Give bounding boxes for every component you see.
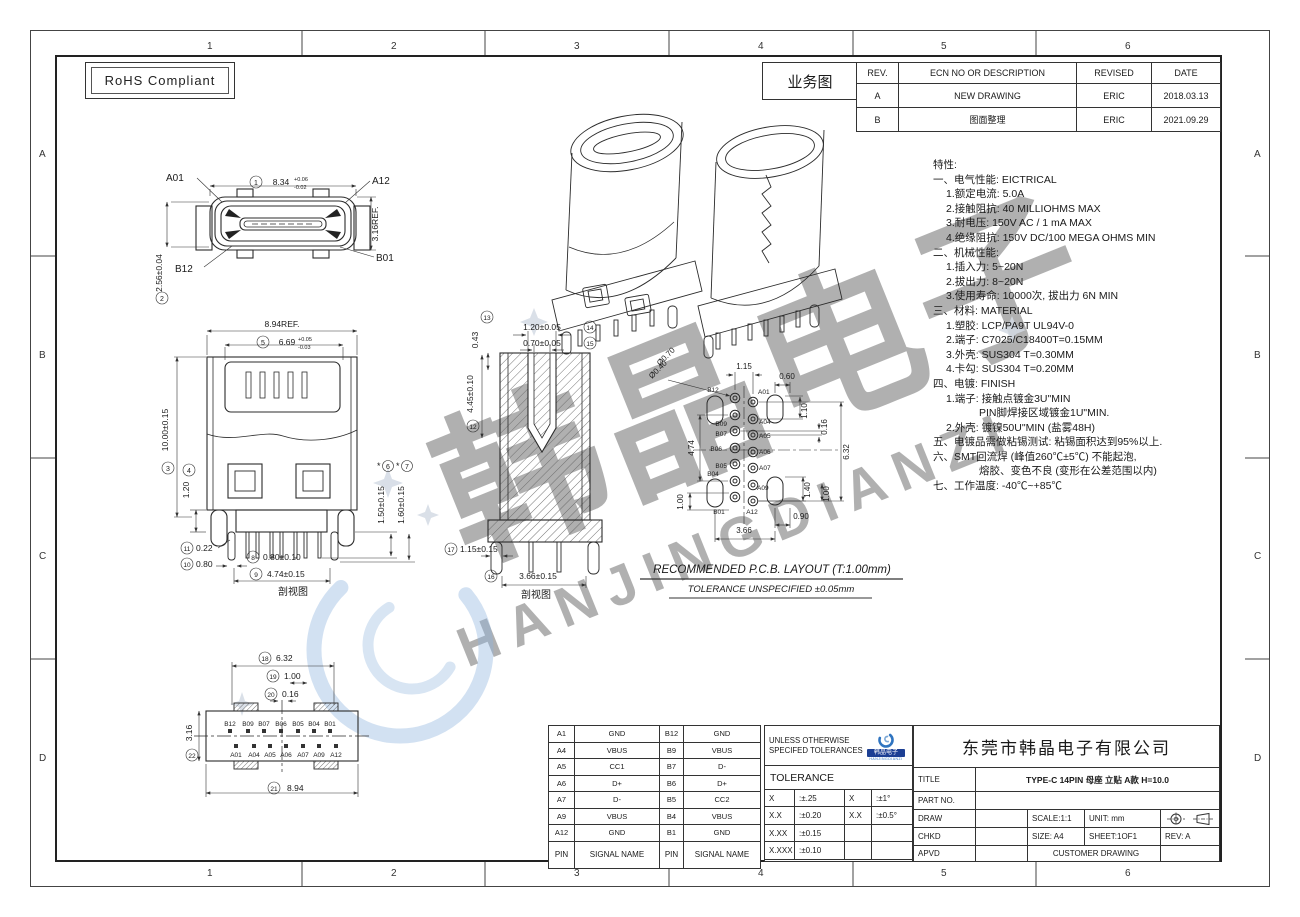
pin-label: B06 [275,721,287,728]
spec-line: 1.塑胶: LCP/PA9T UL94V-0 [933,319,1228,334]
sheet-value: SHEET:1OF1 [1085,828,1161,846]
tolerance-note-line1: UNLESS OTHERWISE [769,736,864,746]
pcb-title: RECOMMENDED P.C.B. LAYOUT (T:1.00mm) [653,564,891,576]
pin-label: A07 [297,752,309,759]
tol-cell [845,825,872,842]
dim-text: 1.15 [736,362,752,371]
pin-label: B07 [715,431,727,438]
dim-text: 3.66±0.15 [519,571,557,581]
spec-line: 四、电镀: FINISH [933,377,1228,392]
pin-header-row: PIN SIGNAL NAME PIN SIGNAL NAME [549,841,761,868]
spec-line: 4.绝缘阻抗: 150V DC/100 MEGA OHMS MIN [933,231,1228,246]
tolerance-title: TOLERANCE [765,766,912,790]
view-caption: 剖视图 [278,585,308,598]
apvd-value [976,846,1028,861]
dim-tol-minus: -0.03 [298,345,311,351]
draw-label: DRAW [914,810,976,828]
spec-line: 二、机械性能: [933,246,1228,261]
pin-row: A5 CC1 B7 D- [549,759,761,776]
rev-header: REV. [857,63,899,84]
pin-label: B12 [224,721,236,728]
title-block-blank [1161,846,1219,861]
pin-cell: B7 [660,759,684,776]
spec-line: 一、电气性能: EICTRICAL [933,173,1228,188]
spec-line: 3.耐电压: 150V AC / 1 mA MAX [933,216,1228,231]
spec-line: 熔胶、变色不良 (变形在公差范围以内) [933,464,1228,479]
dim-ballon: 8 [251,555,255,562]
pin-label: B05 [292,721,304,728]
pin-row: A12 GND B1 GND [549,825,761,842]
dim-text: 6.32 [842,444,851,460]
tol-cell: X [765,790,795,807]
tol-cell: X.X [765,807,795,824]
pin-cell: D- [684,759,761,776]
pin-cell: CC2 [684,792,761,809]
spec-line: 3.外壳: SUS304 T=0.30MM [933,348,1228,363]
pin-assignment-table: A1 GND B12 GND A4 VBUS B9 VBUS A5 CC1 B7… [548,725,761,869]
pin-cell: B6 [660,775,684,792]
dim-text: 0.80±0.10 [263,552,301,562]
customer-drawing-label: CUSTOMER DRAWING [1028,846,1161,861]
dim-text: 3.16REF. [370,207,380,242]
pin-row: A6 D+ B6 D+ [549,775,761,792]
pin-cell: PIN [660,841,684,868]
dim-star: * [396,461,400,471]
pin-label-b01: B01 [376,253,394,264]
pin-cell: VBUS [575,742,660,759]
pin-cell: B9 [660,742,684,759]
pin-cell: VBUS [684,742,761,759]
pin-label: B09 [242,721,254,728]
dim-text: 1.50±0.15 [376,486,386,524]
dim-star: * [377,461,381,471]
company-name: 东莞市韩晶电子有限公司 [914,726,1219,768]
dim-tol-plus: +0.06 [294,177,308,183]
dim-text: 4.45±0.10 [465,375,475,413]
tol-cell: :±0.5° [872,807,912,824]
dim-ballon: 13 [483,315,491,322]
dim-ballon: 5 [261,340,265,347]
dim-text: 1.00 [284,671,301,681]
third-angle-projection-icon [1164,812,1216,826]
rohs-badge: RoHS Compliant [85,62,235,99]
dim-tol-minus: -0.02 [294,185,307,191]
tol-cell: X.XX [765,825,795,842]
pin-row: A7 D- B5 CC2 [549,792,761,809]
dim-ballon: 12 [469,424,477,431]
pin-cell: A4 [549,742,575,759]
pin-label: B01 [324,721,336,728]
view-bottom-labels: B12 B09 B07 B06 B05 B04 B01 A01 A04 A05 … [224,721,342,759]
rev-value: REV: A [1161,828,1219,846]
title-label: TITLE [914,768,976,792]
draw-value [976,810,1028,828]
pin-label: A06 [759,449,771,456]
part-no-label: PART NO. [914,792,976,810]
pin-label-b12: B12 [175,264,193,275]
pin-label: A09 [313,752,325,759]
tol-cell [872,842,912,859]
view-section [488,353,602,574]
title-block: 东莞市韩晶电子有限公司 TITLE TYPE-C 14PIN 母座 立贴 A款 … [913,725,1220,862]
pin-label: A07 [759,465,771,472]
pin-cell: D- [575,792,660,809]
dim-text: 8.94 [287,783,304,793]
tolerance-header: UNLESS OTHERWISE SPECIFED TOLERANCES 韩晶电… [765,726,912,766]
dim-ballon: 11 [184,546,191,553]
scale-value: SCALE:1:1 [1028,810,1085,828]
pin-cell: PIN [549,841,575,868]
dim-ballon: 18 [261,656,269,663]
dim-text: 6.69 [279,337,296,347]
company-logo: 韩晶电子 HANJINGDIANZI [864,731,912,761]
pin-cell: GND [684,825,761,842]
rev-cell: ERIC [1077,84,1152,108]
dim-ballon: 1 [254,180,258,187]
pin-label: A09 [757,485,769,492]
rev-cell: A [857,84,899,108]
revision-row: B 图面整理 ERIC 2021.09.29 [857,108,1221,132]
drawing-title: TYPE-C 14PIN 母座 立贴 A款 H=10.0 [976,768,1219,792]
dim-ballon: 2 [160,296,164,303]
view-front-dims: 1 8.34 +0.06 -0.02 A01 A12 B12 B01 2.56±… [154,173,394,304]
dim-ballon: 4 [187,468,191,475]
spec-line: 六、SMT回流焊 (峰值260℃±5℃) 不能起泡, [933,450,1228,465]
spec-line: 3.使用寿命: 10000次, 拔出力 6N MIN [933,289,1228,304]
spec-line: 三、材料: MATERIAL [933,304,1228,319]
pin-label: A05 [264,752,276,759]
pin-row: A4 VBUS B9 VBUS [549,742,761,759]
tol-cell: :±0.15 [795,825,845,842]
pin-label: A06 [280,752,292,759]
pin-label: B06 [710,446,722,453]
spec-line: PIN脚焊接区域镀金1U"MIN. [933,406,1228,421]
size-value: SIZE: A4 [1028,828,1085,846]
pin-cell: A1 [549,726,575,743]
tol-cell [872,825,912,842]
dim-text: 4.74±0.15 [267,569,305,579]
dim-ballon: 9 [254,572,258,579]
pin-cell: B12 [660,726,684,743]
pin-label: A05 [759,433,771,440]
dim-ballon: 19 [269,674,277,681]
view-caption: 剖视图 [521,588,551,601]
rev-header: ECN NO OR DESCRIPTION [899,63,1077,84]
pcb-tolerance-note: TOLERANCE UNSPECIFIED ±0.05mm [688,584,855,595]
dim-text: 6.32 [276,653,293,663]
dim-ballon: 10 [183,562,191,569]
view-elevation-dims: 8.94REF. 5 6.69 +0.05 -0.03 10.00±0.15 3… [160,319,415,598]
spec-line: 2.接触阻抗: 40 MILLIOHMS MAX [933,202,1228,217]
pin-cell: A7 [549,792,575,809]
spec-line: 1.端子: 接触点镀金3U"MIN [933,392,1228,407]
logo-name: 韩晶电子 [867,749,905,757]
rohs-label: RoHS Compliant [91,67,229,94]
dim-ballon: 6 [386,464,390,471]
pin-cell: CC1 [575,759,660,776]
pin-cell: B5 [660,792,684,809]
dim-text: 8.34 [273,177,290,187]
projection-symbols [1161,810,1219,828]
rev-cell: NEW DRAWING [899,84,1077,108]
pin-cell: GND [575,825,660,842]
dim-text: 3.66 [736,526,752,535]
dim-text: 1.60±0.15 [396,486,406,524]
pin-label: A04 [759,419,771,426]
dim-text: 3.16 [184,724,194,741]
spec-notes: 特性: 一、电气性能: EICTRICAL 1.额定电流: 5.0A 2.接触阻… [933,158,1228,494]
dim-text: 1.20±0.05 [523,322,561,332]
view-elevation [207,357,357,560]
pin-label: B04 [707,471,719,478]
dim-ballon: 14 [586,325,594,332]
pin-label: A12 [746,509,758,516]
dim-text: 0.80 [196,559,213,569]
pin-cell: VBUS [684,808,761,825]
logo-swirl-icon [875,731,897,749]
pin-label: A01 [758,389,770,396]
spec-line: 五、电镀品需做粘锡测试: 粘锡面积达到95%以上. [933,435,1228,450]
pin-cell: VBUS [575,808,660,825]
dim-text: 1.00 [822,486,831,502]
drawing-sheet: 1 2 3 4 5 6 1 2 3 4 5 6 A B C D A B C D … [0,0,1300,917]
dim-text: 0.22 [196,543,213,553]
dim-ballon: 17 [447,547,455,554]
pin-cell: B1 [660,825,684,842]
pin-label-a12: A12 [372,176,390,187]
pin-cell: D+ [684,775,761,792]
unit-value: UNIT: mm [1085,810,1161,828]
pin-label: B07 [258,721,270,728]
spec-line: 1.额定电流: 5.0A [933,187,1228,202]
bottom-pads [228,729,338,748]
revision-header-row: REV. ECN NO OR DESCRIPTION REVISED DATE [857,63,1221,84]
revision-table: REV. ECN NO OR DESCRIPTION REVISED DATE … [856,62,1221,132]
pin-label: A04 [248,752,260,759]
pin-cell: B4 [660,808,684,825]
dim-ballon: 16 [487,574,495,581]
rev-cell: 图面整理 [899,108,1077,132]
dim-ballon: 20 [267,692,275,699]
pin-label: A12 [330,752,342,759]
view-front [196,189,370,258]
rev-header: DATE [1152,63,1221,84]
pin-cell: A6 [549,775,575,792]
dim-text: 1.20 [181,481,191,498]
rev-cell: 2018.03.13 [1152,84,1221,108]
spec-line: 七、工作温度: -40℃~+85℃ [933,479,1228,494]
chkd-value [976,828,1028,846]
dim-text: 1.40 [803,482,812,498]
logo-subtext: HANJINGDIANZI [869,757,902,761]
spec-line: 2.外壳: 镀镍50U"MIN (盐雾48H) [933,421,1228,436]
dim-text: 0.60 [779,372,795,381]
pin-label: A01 [230,752,242,759]
dim-text: 1.00 [676,494,685,510]
dim-text: 2.56±0.04 [154,254,164,292]
spec-line: 特性: [933,158,1228,173]
dim-text: 0.16 [282,689,299,699]
dim-text: 8.94REF. [265,319,300,329]
spec-line: 2.拔出力: 8~20N [933,275,1228,290]
dim-text: 1.15±0.15 [460,544,498,554]
rev-cell: ERIC [1077,108,1152,132]
tolerance-grid: X :±.25 X :±1° X.X :±0.20 X.X :±0.5° X.X… [765,790,912,860]
dim-tol-plus: +0.05 [298,337,312,343]
pin-label: B05 [715,463,727,470]
pin-row: A9 VBUS B4 VBUS [549,808,761,825]
pin-cell: A12 [549,825,575,842]
spec-line: 4.卡勾: SUS304 T=0.20MM [933,362,1228,377]
tolerance-block: UNLESS OTHERWISE SPECIFED TOLERANCES 韩晶电… [764,725,913,862]
dim-text: 4.74 [687,440,696,456]
rev-cell: 2021.09.29 [1152,108,1221,132]
apvd-label: APVD [914,846,976,861]
pin-label: B09 [715,421,727,428]
revision-row: A NEW DRAWING ERIC 2018.03.13 [857,84,1221,108]
dim-text: 0.70±0.05 [523,338,561,348]
pin-cell: SIGNAL NAME [575,841,660,868]
view-bottom [194,700,370,772]
part-no-value [976,792,1219,810]
pin-cell: GND [575,726,660,743]
dim-text: 0.16 [820,419,829,435]
spec-line: 2.端子: C7025/C18400T=0.15MM [933,333,1228,348]
tol-cell: :±.25 [795,790,845,807]
spec-line: 1.插入力: 5~20N [933,260,1228,275]
tol-cell: :±0.10 [795,842,845,859]
tol-cell: :±0.20 [795,807,845,824]
tol-cell [845,842,872,859]
tolerance-note-line2: SPECIFED TOLERANCES [769,746,864,756]
dim-ballon: 7 [405,464,409,471]
tol-cell: X [845,790,872,807]
pin-label: B04 [308,721,320,728]
chkd-label: CHKD [914,828,976,846]
pin-cell: SIGNAL NAME [684,841,761,868]
pin-cell: GND [684,726,761,743]
dim-text: 0.43 [470,331,480,348]
tol-cell: X.X [845,807,872,824]
dim-ballon: 15 [586,341,594,348]
dim-ballon: 3 [166,466,170,473]
tol-cell: :±1° [872,790,912,807]
pin-cell: A5 [549,759,575,776]
pin-cell: A9 [549,808,575,825]
dim-text: 10.00±0.15 [160,408,170,451]
pin-label-a01: A01 [166,173,184,184]
dim-text: 0.90 [793,512,809,521]
rev-header: REVISED [1077,63,1152,84]
dim-text: 1.10 [800,403,809,419]
rev-cell: B [857,108,899,132]
dim-ballon: 21 [270,786,278,793]
revision-block-label: 业务图 [762,62,858,100]
tol-cell: X.XXX [765,842,795,859]
pin-row: A1 GND B12 GND [549,726,761,743]
dim-ballon: 22 [188,753,196,760]
pin-cell: D+ [575,775,660,792]
